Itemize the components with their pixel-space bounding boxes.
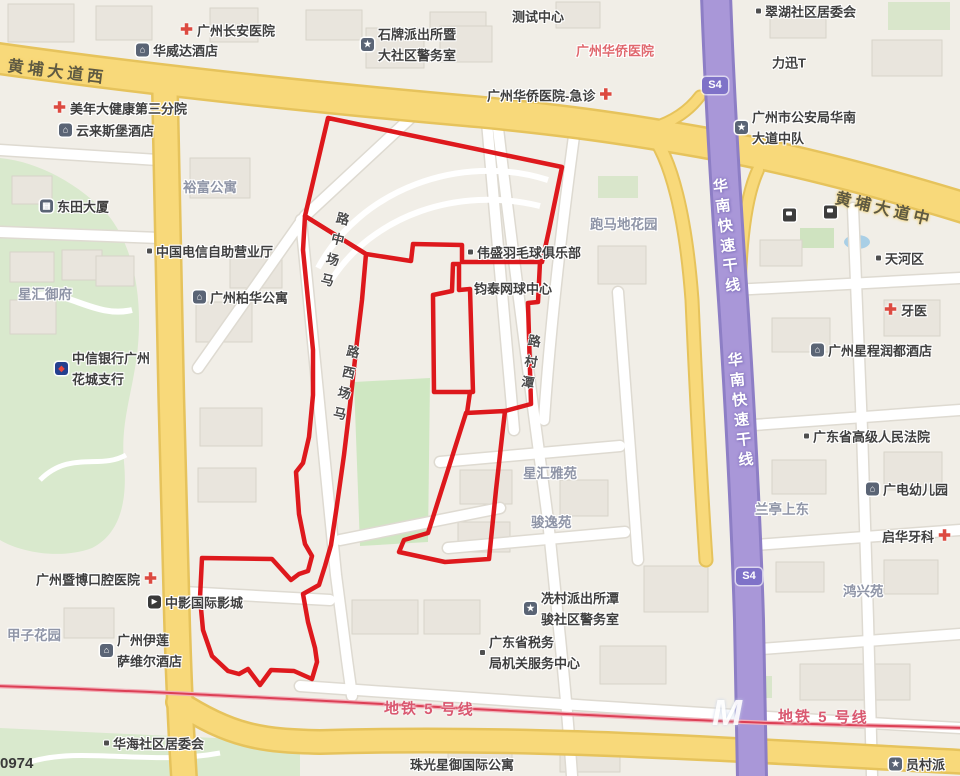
hospital-icon: ✚ [53,102,66,115]
dot-icon [480,650,485,655]
poi-label[interactable]: 钧泰网球中心 [474,279,552,298]
map-canvas[interactable]: 0974 M ✚广州长安医院⌂华威达酒店广州华侨医院-急诊✚✚美年大健康第三分院… [0,0,960,776]
police-icon: ★ [361,38,374,51]
dot-icon [468,250,473,255]
area-label[interactable]: 星汇雅苑 [523,462,577,482]
police-icon: ★ [889,758,902,771]
expressway-name-label: 华南快速干线 [708,177,743,299]
poi-label[interactable]: 伟盛羽毛球俱乐部 [468,243,581,262]
poi-label[interactable]: ★员村派 [889,755,945,774]
police-icon: ★ [735,121,748,134]
poi-label[interactable]: ⌂华威达酒店 [136,41,218,60]
poi-label[interactable]: ⌂广电幼儿园 [866,480,948,499]
bank-icon: ◆ [55,362,68,375]
hotel-icon: ⌂ [59,124,72,137]
metro-line-label: 地铁 5 号线 [384,697,475,720]
area-label[interactable]: 兰亭上东 [755,498,809,518]
school-icon: ⌂ [866,483,879,496]
dot-icon [104,741,109,746]
expressway-badge: S4 [702,77,728,94]
poi-label[interactable]: 广州暨博口腔医院✚ [36,570,157,589]
dot-icon [876,256,881,261]
expressway-name-label: 华南快速干线 [723,351,756,473]
area-label[interactable]: 星汇御府 [18,283,72,303]
hospital-icon: ✚ [144,573,157,586]
area-label[interactable]: 骏逸苑 [531,511,572,531]
expressway-badge: S4 [736,568,762,585]
poi-label[interactable]: 中国电信自助营业厅 [147,242,273,261]
poi-label[interactable]: 华海社区居委会 [104,734,204,753]
hotel-icon: ⌂ [100,644,113,657]
hospital-icon: ✚ [180,24,193,37]
poi-label[interactable]: ★石牌派出所暨大社区警务室 [361,24,456,64]
poi-label[interactable]: ⌂广州星程润都酒店 [811,341,932,360]
hospital-icon: ✚ [938,530,951,543]
poi-label[interactable]: 翠湖社区居委会 [756,2,856,21]
poi-label[interactable] [783,209,796,222]
poi-label[interactable]: 测试中心 [512,7,564,26]
cinema-icon: ▶ [148,596,161,609]
poi-label[interactable]: ⌂广州伊莲萨维尔酒店 [100,630,182,670]
hospital-icon: ✚ [884,304,897,317]
dot-icon [147,249,152,254]
avenue-name-label: 黄埔大道西 [7,52,109,88]
metro-logo: M [712,692,742,734]
area-label[interactable]: 甲子花园 [7,624,61,644]
poi-label[interactable]: 天河区 [876,249,924,268]
poi-label[interactable]: 广东省税务局机关服务中心 [480,632,580,672]
poi-label[interactable]: ★广州市公安局华南大道中队 [735,107,856,147]
dot-icon [756,9,761,14]
poi-label[interactable]: ★冼村派出所潭骏社区警务室 [524,588,619,628]
poi-label[interactable]: ✚牙医 [884,301,927,320]
poi-label[interactable]: 广州华侨医院 [576,41,654,60]
watermark: 0974 [0,755,33,772]
hotel-icon: ⌂ [136,44,149,57]
street-name-label: 路村潭 [515,333,544,398]
poi-label[interactable]: 启华牙科✚ [882,527,951,546]
poi-label[interactable]: ▦东田大厦 [40,197,109,216]
area-label[interactable]: 鸿兴苑 [843,580,884,600]
poi-label[interactable]: 珠光星御国际公寓 [410,755,514,774]
hospital-icon: ✚ [599,89,612,102]
poi-label[interactable]: ◆中信银行广州花城支行 [55,348,150,388]
street-name-label: 路西场马 [327,343,363,429]
poi-label[interactable]: 广东省高级人民法院 [804,427,930,446]
labels-layer: 0974 M ✚广州长安医院⌂华威达酒店广州华侨医院-急诊✚✚美年大健康第三分院… [0,0,960,776]
poi-label[interactable]: ⌂广州柏华公寓 [193,288,288,307]
police-icon: ★ [524,602,537,615]
poi-label[interactable]: 广州华侨医院-急诊✚ [487,86,612,105]
poi-label[interactable]: ✚美年大健康第三分院 [53,99,187,118]
avenue-name-label: 黄埔大道中 [833,184,936,230]
dot-icon [804,434,809,439]
street-name-label: 路中场马 [314,210,353,296]
area-label[interactable]: 裕富公寓 [183,176,237,196]
gas-icon [783,209,796,222]
poi-label[interactable]: ▶中影国际影城 [148,593,243,612]
poi-label[interactable]: 力迅T [772,53,806,72]
hotel-icon: ⌂ [811,344,824,357]
hotel-icon: ⌂ [193,291,206,304]
poi-label[interactable]: ✚广州长安医院 [180,21,275,40]
metro-line-label: 地铁 5 号线 [778,705,869,728]
poi-label[interactable]: ⌂云来斯堡酒店 [59,121,154,140]
area-label[interactable]: 跑马地花园 [590,213,658,233]
building-icon: ▦ [40,200,53,213]
